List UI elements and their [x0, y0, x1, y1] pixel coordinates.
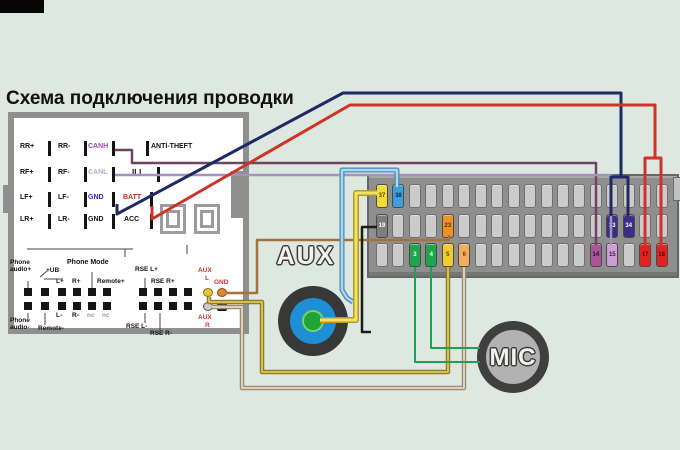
- phone-pin: [103, 302, 111, 310]
- block-pin-number: 4: [426, 244, 436, 266]
- block-slot: [475, 214, 487, 238]
- block-slot: [508, 184, 520, 208]
- phone-pin: [184, 302, 192, 310]
- block-slot: [392, 214, 404, 238]
- pin-label-LR-: LR-: [58, 216, 70, 223]
- block-slot: [557, 214, 569, 238]
- phone-label-r-: R-: [72, 313, 79, 320]
- block-pin-18: 18: [656, 243, 668, 267]
- block-pin-23: 23: [442, 214, 454, 238]
- panel-left-tab: [3, 185, 14, 213]
- pin-label-BATT: BATT: [123, 194, 141, 201]
- phone-label-remote-: Remote-: [38, 326, 64, 333]
- block-slot: [409, 184, 421, 208]
- block-slot: [656, 214, 668, 238]
- phone-label-remote+: Remote+: [97, 279, 125, 286]
- phone-pin: [169, 302, 177, 310]
- pin-bar: [84, 167, 87, 182]
- block-slot: [590, 184, 602, 208]
- block-pin-number: 3: [410, 244, 420, 266]
- phone-label-+ub: +UB: [46, 268, 59, 275]
- phone-pin: [88, 302, 96, 310]
- aux-r-pin: [203, 302, 213, 311]
- aux-jack-tip: [302, 310, 324, 332]
- phone-pin: [184, 288, 192, 296]
- mic-label: MIC: [477, 344, 549, 372]
- phone-label-gnd: GND: [214, 280, 228, 287]
- block-slot: [524, 243, 536, 267]
- block-pin-number: 17: [640, 244, 650, 266]
- pin-bar: [112, 214, 115, 229]
- block-pin-number: 23: [443, 215, 453, 237]
- block-slot: [541, 184, 553, 208]
- phone-label-nc: nc: [87, 313, 95, 320]
- phone-label-audio+: audio+: [10, 267, 31, 274]
- phone-pin: [41, 288, 49, 296]
- pin-label-ANTI-THEFT: ANTI-THEFT: [151, 143, 192, 150]
- pin-label-CANH: CANH: [88, 143, 108, 150]
- block-slot: [541, 214, 553, 238]
- aux-label: AUX: [262, 242, 350, 271]
- pin-bar: [48, 167, 51, 182]
- block-slot: [573, 243, 585, 267]
- phone-label-r+: R+: [72, 279, 81, 286]
- pin-bar: [146, 141, 149, 156]
- block-slot: [606, 184, 618, 208]
- pin-bar: [112, 141, 115, 156]
- corner-artifact: [0, 0, 44, 13]
- block-slot: [639, 184, 651, 208]
- block-slot: [557, 184, 569, 208]
- block-slot: [524, 214, 536, 238]
- block-slot: [573, 214, 585, 238]
- block-pin-3: 3: [409, 243, 421, 267]
- block-slot: [508, 214, 520, 238]
- block-slot: [508, 243, 520, 267]
- nc-pin: [217, 302, 227, 311]
- block-slot: [458, 214, 470, 238]
- block-slot: [623, 243, 635, 267]
- pin-label-LF-: LF-: [58, 194, 69, 201]
- phone-pin: [139, 288, 147, 296]
- block-pin-number: 33: [607, 215, 617, 237]
- block-slot: [458, 184, 470, 208]
- pin-bar: [48, 141, 51, 156]
- phone-label-rse-r+: RSE R+: [151, 279, 175, 286]
- pin-bar: [112, 167, 115, 182]
- block-pin-19: 19: [376, 214, 388, 238]
- phone-label-rse-l+: RSE L+: [135, 267, 158, 274]
- pin-bar: [150, 214, 153, 229]
- phone-label-nc: nc: [102, 313, 110, 320]
- connector-block-tab: [673, 177, 680, 201]
- block-slot: [425, 214, 437, 238]
- block-slot: [541, 243, 553, 267]
- block-slot: [475, 243, 487, 267]
- connector-keyway-right: [194, 204, 220, 234]
- block-slot: [524, 184, 536, 208]
- pin-bar: [84, 192, 87, 207]
- pin-label-RR-: RR-: [58, 143, 70, 150]
- phone-pin: [169, 288, 177, 296]
- pin-bar: [150, 192, 153, 207]
- phone-pin: [24, 302, 32, 310]
- block-pin-15: 15: [606, 243, 618, 267]
- pin-label-RR+: RR+: [20, 143, 34, 150]
- pin-label-LF+: LF+: [20, 194, 33, 201]
- pin-label-LR+: LR+: [20, 216, 33, 223]
- block-pin-number: 37: [377, 185, 387, 207]
- phone-label-phone-mode: Phone Mode: [67, 259, 109, 266]
- phone-pin: [73, 302, 81, 310]
- block-pin-number: 14: [591, 244, 601, 266]
- pin-bar: [48, 192, 51, 207]
- pin-bar: [112, 192, 115, 207]
- block-pin-number: 5: [443, 244, 453, 266]
- connector-keyway-left: [160, 204, 186, 234]
- phone-pin: [41, 302, 49, 310]
- diagram-title: Схема подключения проводки: [6, 88, 294, 110]
- panel-right-tab: [231, 171, 249, 218]
- pin-bar: [48, 214, 51, 229]
- block-slot: [409, 214, 421, 238]
- block-slot: [639, 214, 651, 238]
- pin-label-GND: GND: [88, 194, 104, 201]
- block-slot: [491, 243, 503, 267]
- phone-label-l-: L-: [56, 313, 62, 320]
- block-pin-number: 19: [377, 215, 387, 237]
- block-slot: [656, 184, 668, 208]
- aux-l-pin: [203, 288, 213, 297]
- block-pin-number: 38: [393, 185, 403, 207]
- block-pin-38: 38: [392, 184, 404, 208]
- phone-label-r: R: [205, 323, 210, 330]
- block-slot: [491, 184, 503, 208]
- block-slot: [590, 214, 602, 238]
- block-pin-37: 37: [376, 184, 388, 208]
- pin-4-to-mic-wire: [431, 267, 480, 348]
- block-pin-14: 14: [590, 243, 602, 267]
- pin-label-ILL: ILL: [132, 169, 144, 177]
- block-pin-34: 34: [623, 214, 635, 238]
- block-slot: [557, 243, 569, 267]
- phone-label-rse-r-: RSE R-: [150, 331, 172, 338]
- block-pin-number: 34: [624, 215, 634, 237]
- phone-pin: [88, 288, 96, 296]
- block-slot: [376, 243, 388, 267]
- block-pin-number: 18: [657, 244, 667, 266]
- phone-label-aux: AUX: [198, 268, 212, 275]
- block-slot: [491, 214, 503, 238]
- block-pin-6: 6: [458, 243, 470, 267]
- pin-3-to-mic-wire: [415, 267, 480, 362]
- phone-pin: [24, 288, 32, 296]
- block-pin-number: 15: [607, 244, 617, 266]
- pin-label-RF-: RF-: [58, 169, 70, 176]
- block-pin-33: 33: [606, 214, 618, 238]
- phone-pin: [154, 288, 162, 296]
- phone-pin: [58, 302, 66, 310]
- block-slot: [573, 184, 585, 208]
- phone-pin: [154, 302, 162, 310]
- pin-label-GND: GND: [88, 216, 104, 223]
- phone-label-l+: L+: [56, 279, 64, 286]
- block-pin-4: 4: [425, 243, 437, 267]
- pin-label-ACC: ACC: [124, 216, 139, 223]
- block-pin-number: 6: [459, 244, 469, 266]
- block-slot: [475, 184, 487, 208]
- pin-bar: [84, 214, 87, 229]
- block-slot: [623, 184, 635, 208]
- pin-bar: [157, 167, 160, 182]
- pin-label-RF+: RF+: [20, 169, 33, 176]
- block-slot: [425, 184, 437, 208]
- pin-label-CANL: CANL: [88, 169, 107, 176]
- phone-pin: [139, 302, 147, 310]
- block-slot: [392, 243, 404, 267]
- phone-label-audio-: audio-: [10, 325, 30, 332]
- block-slot: [442, 184, 454, 208]
- wiring-diagram: Схема подключения проводки RR+RR-CANHANT…: [0, 0, 680, 450]
- phone-label-aux: AUX: [198, 315, 212, 322]
- phone-label-l: L: [205, 276, 209, 283]
- gnd-pin: [217, 288, 227, 297]
- block-pin-5: 5: [442, 243, 454, 267]
- phone-pin: [103, 288, 111, 296]
- phone-label-rse-l-: RSE L-: [126, 324, 147, 331]
- phone-pin: [73, 288, 81, 296]
- block-pin-17: 17: [639, 243, 651, 267]
- pin-bar: [84, 141, 87, 156]
- phone-pin: [58, 288, 66, 296]
